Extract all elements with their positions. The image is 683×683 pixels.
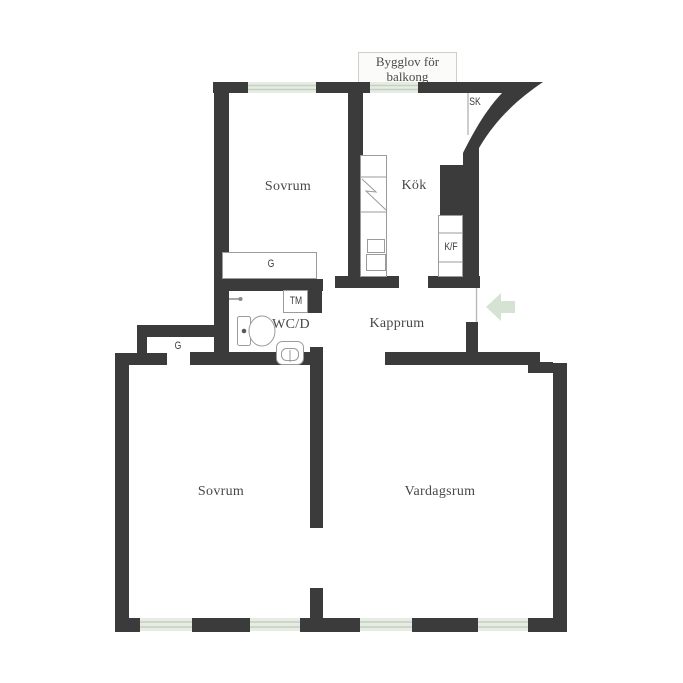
room-label-kapprum: Kapprum (370, 316, 425, 332)
window (248, 82, 316, 93)
room-label-sovrum-bottom: Sovrum (198, 484, 244, 500)
toilet-icon (238, 316, 276, 346)
window (478, 618, 528, 631)
curved-wall (418, 82, 543, 277)
shaft (440, 165, 478, 215)
window (140, 618, 192, 631)
room-label-kok: Kök (401, 178, 426, 194)
room-label-vardagsrum: Vardagsrum (405, 484, 476, 500)
shower-icon (229, 297, 243, 301)
room-label-wcd: WC/D (272, 317, 310, 333)
window (250, 618, 300, 631)
kitchen-sink-icon (368, 240, 385, 253)
entrance-arrow-icon (486, 293, 515, 321)
balcony-window (370, 82, 418, 93)
floor-plan: Bygglov för balkong (0, 0, 683, 683)
fixture-label-tm: TM (290, 295, 302, 307)
wall (115, 82, 567, 632)
window (360, 618, 412, 631)
fixture-label-sk: SK (469, 96, 480, 108)
room-label-sovrum-top: Sovrum (265, 179, 311, 195)
floor-plan-drawing (0, 0, 683, 683)
fixture-label-kf: K/F (444, 241, 457, 253)
bathroom-sink-icon (277, 342, 304, 365)
kitchen-counter-icon (361, 156, 387, 277)
fixture-label-g-bottom: G (175, 340, 182, 352)
fixture-label-g-top: G (268, 258, 275, 270)
